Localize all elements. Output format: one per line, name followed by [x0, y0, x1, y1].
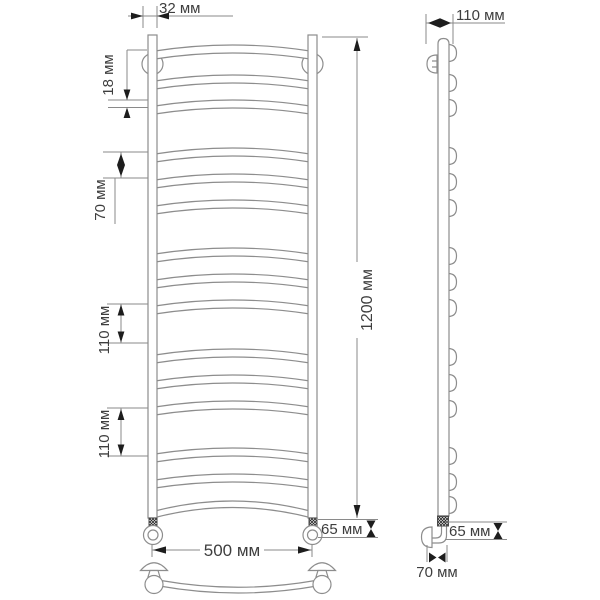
side-view [422, 39, 457, 548]
technical-drawing: 32 мм 18 мм 70 мм 110 мм 110 мм 1200 мм … [0, 0, 600, 600]
front-view [141, 35, 336, 594]
bottom-arc-assembly [141, 563, 336, 594]
rung [155, 100, 310, 114]
drawing-canvas: 32 мм 18 мм 70 мм 110 мм 110 мм 1200 мм … [0, 0, 600, 600]
bottom-return-tube [155, 501, 310, 518]
dimension-70mm-bottom: 70 мм [416, 545, 457, 581]
dimension-110mm-b: 110 мм [96, 408, 148, 458]
rung [155, 375, 310, 389]
wall-flange-bottom [422, 527, 433, 548]
rung [155, 300, 310, 314]
rung [155, 274, 310, 288]
double-arrow-vertical-icon [117, 154, 125, 177]
arrow-up-icon [118, 409, 125, 420]
foot-ball-right [313, 576, 331, 594]
rung [155, 401, 310, 415]
eccentric-ring-right-inner [308, 530, 318, 540]
squeezed-arrow-icon [438, 553, 446, 563]
rung [155, 174, 310, 188]
rungs [155, 45, 310, 488]
dimension-65mm-right: 65 мм [445, 522, 507, 540]
foot-ball-left [145, 576, 163, 594]
dim-label-110-a: 110 мм [96, 306, 113, 355]
dim-label-110-top: 110 мм [456, 7, 505, 24]
arrow-right-icon [298, 546, 311, 553]
squeezed-arrow-icon [494, 523, 503, 531]
arrow-right-icon [131, 13, 143, 20]
arrow-down-icon [354, 505, 361, 518]
double-arrow-horizontal-icon [428, 18, 451, 28]
arrow-left-icon [153, 546, 166, 553]
rung [155, 474, 310, 488]
dimension-65mm-left: 65 мм [318, 520, 378, 539]
rung [155, 148, 310, 162]
dim-label-70-left: 70 мм [92, 179, 109, 220]
dimension-110mm-top: 110 мм [426, 7, 505, 44]
arrow-down-icon [118, 445, 125, 456]
right-rail [308, 35, 317, 518]
arrow-up-icon [118, 305, 125, 316]
dimension-18mm: 18 мм [100, 50, 148, 118]
rung [155, 75, 310, 89]
side-pipe [438, 39, 449, 517]
foot-cap-right [309, 563, 336, 571]
left-rail [148, 35, 157, 518]
rung [155, 349, 310, 363]
arrow-up-icon [124, 108, 131, 119]
wall-flange-top [427, 55, 437, 73]
dim-label-65-left: 65 мм [321, 521, 362, 538]
squeezed-arrow-icon [494, 531, 503, 539]
arrow-down-icon [124, 90, 131, 101]
dimension-1200mm: 1200 мм [322, 37, 376, 518]
dim-label-32: 32 мм [159, 0, 200, 17]
dimension-500mm: 500 мм [152, 541, 312, 560]
bottom-arc-top-line [161, 581, 316, 588]
dimension-70mm-left: 70 мм [92, 152, 148, 224]
eccentric-ring-left-inner [148, 530, 158, 540]
rung [155, 248, 310, 262]
dimension-32mm: 32 мм [128, 0, 233, 28]
dim-label-500: 500 мм [204, 541, 260, 560]
rung [155, 45, 310, 59]
squeezed-arrow-icon [367, 521, 376, 530]
rung [155, 200, 310, 214]
dim-label-70-bottom: 70 мм [416, 564, 457, 581]
arrow-up-icon [354, 39, 361, 52]
dim-label-1200: 1200 мм [359, 269, 376, 331]
side-valve-hatch [438, 516, 449, 526]
rung [155, 448, 310, 462]
dim-label-18: 18 мм [100, 54, 117, 95]
dim-label-110-b: 110 мм [96, 410, 113, 459]
squeezed-arrow-icon [429, 553, 437, 563]
dimension-110mm-a: 110 мм [96, 304, 148, 354]
dim-label-65-right: 65 мм [449, 523, 490, 540]
arrow-down-icon [118, 332, 125, 343]
squeezed-arrow-icon [367, 529, 376, 537]
foot-cap-left [141, 563, 168, 571]
